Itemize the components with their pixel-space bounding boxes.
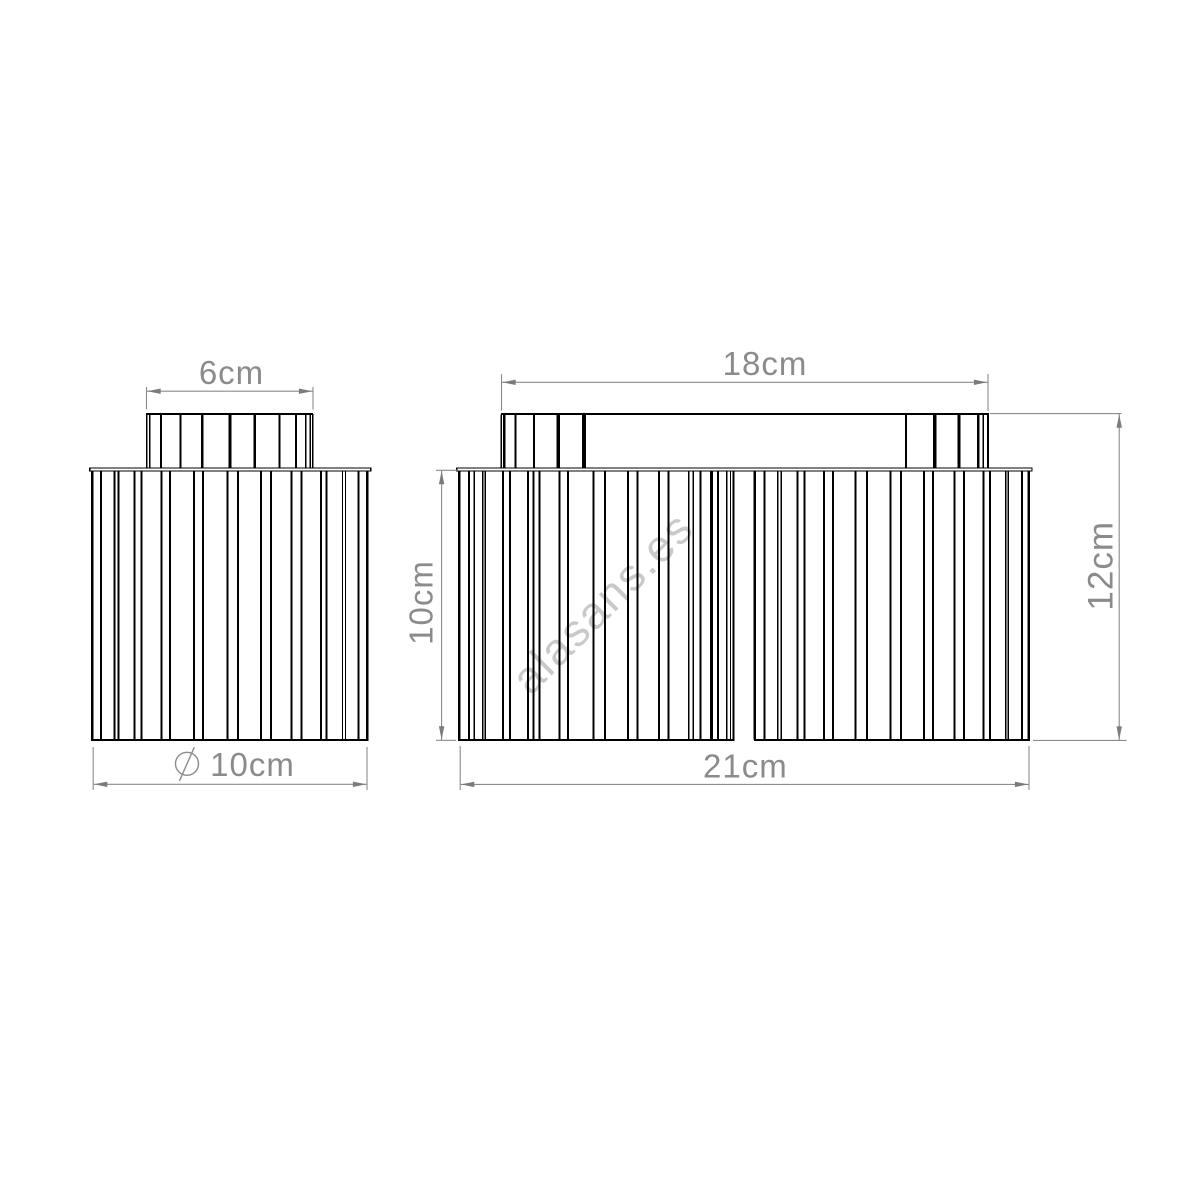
- svg-text:12cm: 12cm: [1081, 521, 1120, 611]
- svg-text:18cm: 18cm: [723, 345, 808, 382]
- svg-text:10cm: 10cm: [210, 746, 295, 783]
- svg-text:10cm: 10cm: [403, 560, 440, 645]
- svg-text:6cm: 6cm: [199, 354, 264, 391]
- svg-text:21cm: 21cm: [703, 748, 788, 785]
